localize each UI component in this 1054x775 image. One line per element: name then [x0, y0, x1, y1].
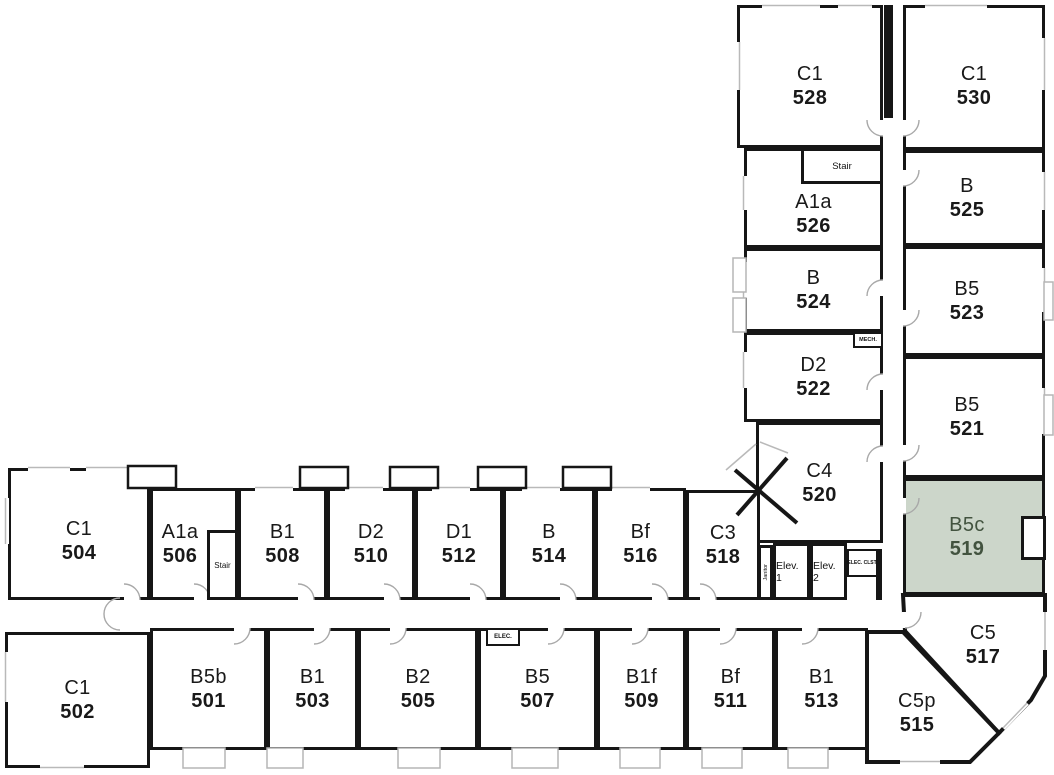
corner-window-gap: [1003, 703, 1027, 728]
bay-window: [267, 748, 303, 768]
stair-upper: Stair: [801, 148, 883, 184]
lobby-wall: [876, 549, 882, 600]
unit-525[interactable]: B525: [903, 150, 1045, 246]
bay-window: [563, 467, 611, 488]
unit-512[interactable]: D1512: [415, 488, 503, 600]
unit-528[interactable]: C1528: [737, 5, 883, 148]
unit-513[interactable]: B1513: [775, 628, 868, 750]
unit-502-label: C1502: [8, 635, 147, 765]
bay-window: [390, 467, 438, 488]
unit-501[interactable]: B5b501: [150, 628, 267, 750]
unit-510-label: D2510: [330, 491, 412, 597]
bay-window: [478, 467, 526, 488]
unit-528-label: C1528: [740, 8, 880, 145]
door-opening: [902, 612, 907, 628]
unit-520[interactable]: C4520: [756, 422, 883, 543]
corner-window-glass: [1003, 703, 1027, 728]
unit-503[interactable]: B1503: [267, 628, 358, 750]
unit-515-label: C5p515: [874, 686, 960, 740]
elevator-1: Elev. 1: [773, 543, 810, 600]
janitor-room: Janitor: [758, 545, 773, 600]
unit-525-label: B525: [906, 153, 1042, 243]
bay-window: [300, 467, 348, 488]
unit-523-label: B5523: [906, 249, 1042, 353]
corner-bay-window: [726, 444, 756, 470]
bay-window: [1044, 282, 1053, 320]
unit-501-label: B5b501: [153, 631, 264, 747]
unit-530[interactable]: C1530: [903, 5, 1045, 150]
floor-plan: C1528 A1a526 B524 D2522 C4520 C1530 B525…: [0, 0, 1054, 775]
unit-513-label: B1513: [778, 631, 865, 747]
unit-516-label: Bf516: [598, 491, 683, 597]
unit-519-bay-notch: [1021, 516, 1046, 560]
bay-window: [702, 748, 742, 768]
bay-window: [620, 748, 660, 768]
unit-510[interactable]: D2510: [327, 488, 415, 600]
unit-503-label: B1503: [270, 631, 355, 747]
window-gap: [1042, 612, 1048, 650]
unit-509-label: B1f509: [600, 631, 683, 747]
elec-room: ELEC.: [486, 628, 520, 646]
unit-518-label: C3518: [689, 493, 757, 597]
unit-524[interactable]: B524: [744, 248, 883, 332]
unit-512-label: D1512: [418, 491, 500, 597]
unit-523[interactable]: B5523: [903, 246, 1045, 356]
unit-502[interactable]: C1502: [5, 632, 150, 768]
mech-room: MECH.: [853, 332, 883, 348]
unit-514-label: B514: [506, 491, 592, 597]
unit-518[interactable]: C3518: [686, 490, 760, 600]
unit-505[interactable]: B2505: [358, 628, 478, 750]
bay-window: [788, 748, 828, 768]
unit-517-label: C5517: [938, 618, 1028, 672]
stair-lower: Stair: [207, 530, 238, 600]
unit-505-label: B2505: [361, 631, 475, 747]
unit-507-label: B5507: [481, 631, 594, 747]
unit-524-label: B524: [747, 251, 880, 329]
unit-508-label: B1508: [241, 491, 324, 597]
unit-504-label: C1504: [11, 471, 147, 597]
door-swing-arc: [905, 612, 921, 628]
unit-507[interactable]: B5507: [478, 628, 597, 750]
elec-closet: ELEC. CLST.: [847, 549, 878, 577]
unit-521-label: B5521: [906, 359, 1042, 475]
unit-504[interactable]: C1504: [8, 468, 150, 600]
bay-window: [183, 748, 225, 768]
unit-516[interactable]: Bf516: [595, 488, 686, 600]
elevator-2: Elev. 2: [810, 543, 847, 600]
unit-520-label: C4520: [759, 425, 880, 540]
unit-530-label: C1530: [906, 8, 1042, 147]
bay-window: [1044, 395, 1053, 435]
bay-window: [512, 748, 558, 768]
party-wall: [884, 5, 893, 118]
window-gap: [900, 758, 940, 765]
unit-511-label: Bf511: [689, 631, 772, 747]
unit-514[interactable]: B514: [503, 488, 595, 600]
door-swing-arc: [104, 598, 120, 614]
door-swing-arc: [104, 614, 120, 630]
unit-508[interactable]: B1508: [238, 488, 327, 600]
bay-window: [398, 748, 440, 768]
unit-521[interactable]: B5521: [903, 356, 1045, 478]
unit-509[interactable]: B1f509: [597, 628, 686, 750]
unit-511[interactable]: Bf511: [686, 628, 775, 750]
